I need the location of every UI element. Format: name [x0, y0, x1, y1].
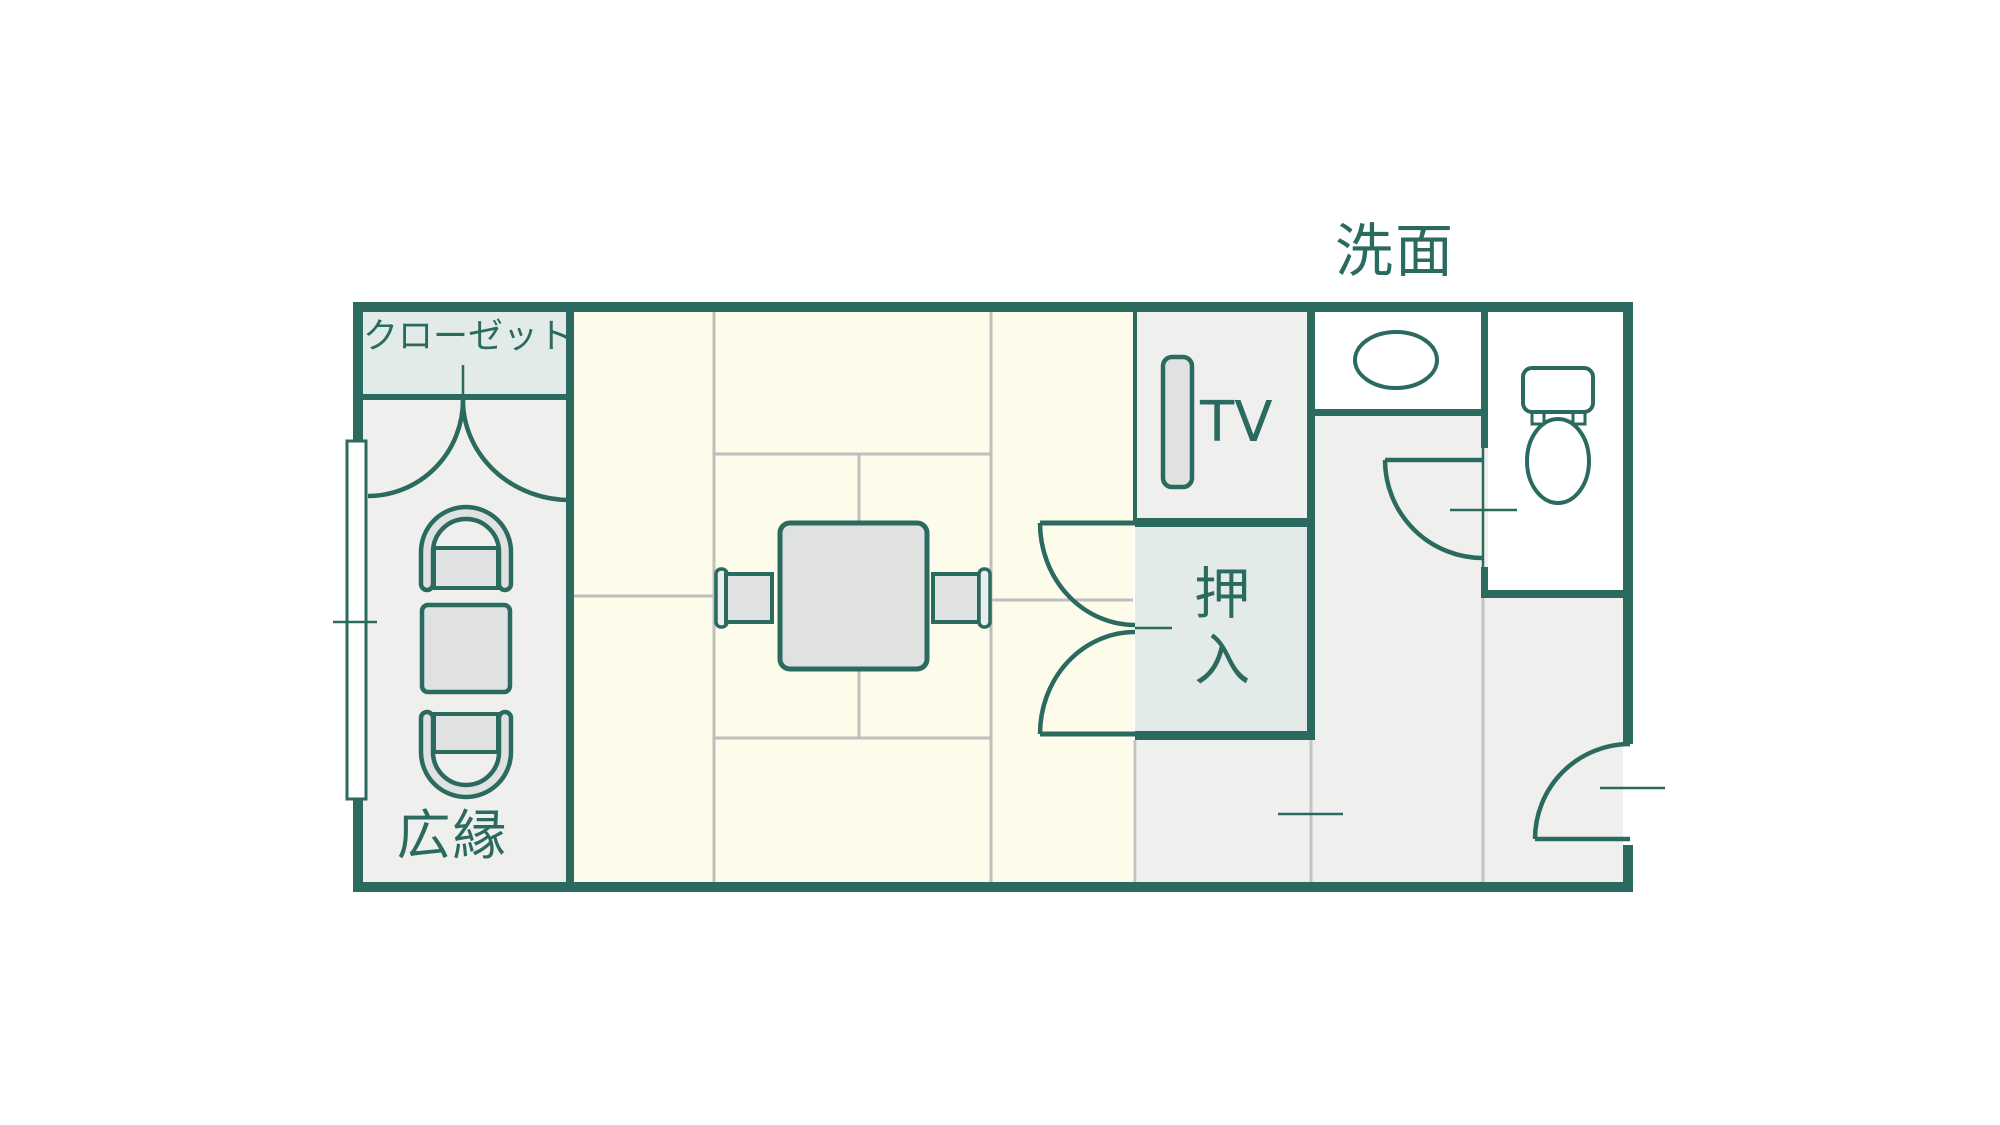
oshiire-label: 押入 [1186, 564, 1248, 696]
armchair-bottom-seat [434, 714, 498, 752]
corridor-floor-below-oshiire [1137, 740, 1315, 882]
toilet-bottom-wall [1481, 590, 1633, 598]
window [347, 441, 366, 799]
floor-plan-drawing [0, 0, 2000, 1125]
closet-front-wall [363, 394, 566, 400]
tv-oshiire-right-wall [1307, 312, 1315, 740]
outer-wall-top [353, 302, 1633, 312]
closet-label: クローゼット [363, 318, 566, 357]
washbasin-label: 洗面 [1300, 220, 1490, 284]
outer-wall-bottom [353, 882, 1633, 892]
zaisu-right-backrest [979, 569, 990, 627]
zaisu-left-seat [726, 574, 772, 622]
side-table [422, 605, 510, 692]
toilet-wall-upper [1481, 312, 1488, 448]
sink-icon [1355, 332, 1437, 388]
floor-plan: クローゼット 広縁 洗面 TV 押入 [0, 0, 2000, 1125]
toilet-bowl-icon [1527, 419, 1589, 503]
tv-label: TV [1200, 392, 1273, 454]
washbasin-counter-wall [1315, 409, 1488, 416]
tv-icon [1163, 357, 1192, 487]
low-table [780, 523, 927, 669]
zaisu-right-seat [933, 574, 979, 622]
outer-wall-right-upper [1623, 302, 1633, 744]
oshiire-top-wall [1135, 518, 1315, 527]
hiroen-partition-wall [566, 312, 574, 882]
armchair-top-seat [434, 548, 498, 588]
toilet-tank-icon [1523, 368, 1593, 412]
oshiire-bottom-wall [1135, 731, 1315, 740]
outer-wall-left-upper [353, 302, 363, 441]
tv-nook-edge-wall [1133, 312, 1137, 521]
outer-wall-right-lower [1623, 845, 1633, 892]
hiroen-label: 広縁 [350, 806, 555, 865]
